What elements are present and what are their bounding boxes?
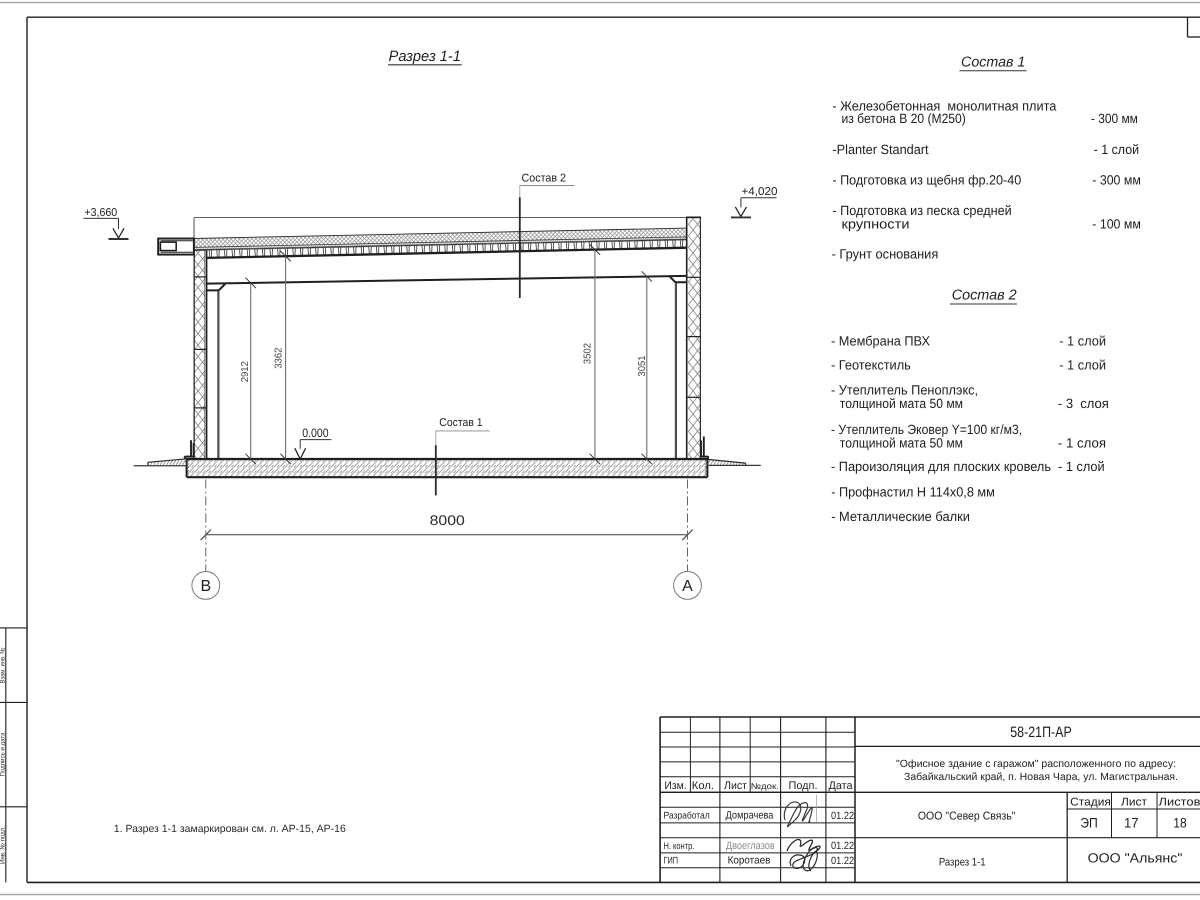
svg-text:3502: 3502	[583, 343, 594, 365]
svg-text:1. Разрез 1-1 замаркирован см.: 1. Разрез 1-1 замаркирован см. л. АР-15,…	[114, 823, 346, 835]
svg-text:Изм.: Изм.	[664, 780, 686, 792]
svg-text:- 300 мм: - 300 мм	[1092, 173, 1141, 188]
svg-text:Листов: Листов	[1159, 796, 1200, 808]
svg-text:18: 18	[1173, 816, 1187, 831]
svg-text:+3,660: +3,660	[84, 207, 117, 219]
svg-text:Подпись и дата: Подпись и дата	[0, 732, 6, 776]
svg-text:- 100 мм: - 100 мм	[1092, 216, 1141, 231]
svg-text:из бетона В 20 (М250): из бетона В 20 (М250)	[842, 111, 966, 126]
svg-text:- Грунт основания: - Грунт основания	[832, 247, 939, 262]
svg-text:Взам. инв. №: Взам. инв. №	[0, 647, 6, 683]
svg-text:- Подготовка из щебня фр.20-40: - Подготовка из щебня фр.20-40	[832, 173, 1021, 188]
svg-text:- 3 слоя: - 3 слоя	[1058, 396, 1109, 411]
svg-text:- Металлические балки: - Металлические балки	[831, 509, 970, 524]
svg-text:Дата: Дата	[829, 780, 854, 792]
svg-text:3362: 3362	[273, 347, 284, 369]
svg-text:Разработал: Разработал	[664, 810, 710, 821]
svg-text:Состав 2: Состав 2	[952, 287, 1017, 303]
svg-text:Лист: Лист	[724, 780, 747, 792]
svg-text:17: 17	[1124, 816, 1139, 831]
svg-text:- Утеплитель Пеноплэкс,: - Утеплитель Пеноплэкс,	[831, 382, 978, 397]
svg-text:Состав 1: Состав 1	[961, 54, 1025, 70]
svg-text:крупности: крупности	[842, 217, 910, 232]
svg-text:толщиной мата 50 мм: толщиной мата 50 мм	[840, 436, 963, 451]
svg-text:- Профнастил Н 114х0,8 мм: - Профнастил Н 114х0,8 мм	[831, 485, 995, 500]
svg-text:- Мембрана ПВХ: - Мембрана ПВХ	[831, 333, 930, 348]
svg-text:ООО "Север Связь": ООО "Север Связь"	[918, 811, 1016, 823]
svg-text:Инв. № подл.: Инв. № подл.	[0, 826, 6, 864]
svg-text:Разрез 1-1: Разрез 1-1	[389, 48, 461, 65]
svg-text:- Пароизоляция для плоских кро: - Пароизоляция для плоских кровель - 1 с…	[831, 459, 1105, 474]
svg-text:8000: 8000	[430, 512, 466, 528]
svg-text:Состав 2: Состав 2	[522, 173, 567, 185]
svg-text:Двоеглазов: Двоеглазов	[726, 840, 775, 852]
svg-text:58-21П-АР: 58-21П-АР	[1010, 724, 1072, 741]
svg-text:ЭП: ЭП	[1080, 816, 1098, 831]
svg-text:Домрачева: Домрачева	[726, 810, 774, 822]
svg-text:-Planter Standart: -Planter Standart	[832, 142, 928, 157]
svg-text:ГИП: ГИП	[664, 856, 679, 867]
svg-text:Состав 1: Состав 1	[439, 417, 482, 429]
svg-text:- 300 мм: - 300 мм	[1091, 111, 1138, 126]
svg-text:Разрез 1-1: Разрез 1-1	[939, 856, 986, 868]
svg-text:- 1 слой: - 1 слой	[1094, 142, 1140, 157]
svg-text:Стадия: Стадия	[1070, 796, 1111, 808]
svg-text:0.000: 0.000	[302, 426, 329, 440]
svg-text:01.22: 01.22	[831, 855, 854, 867]
svg-text:3051: 3051	[637, 355, 648, 377]
svg-text:01.22: 01.22	[831, 810, 854, 822]
svg-text:"Офисное здание с гаражом" рас: "Офисное здание с гаражом" расположенног…	[896, 759, 1176, 770]
svg-text:+4,020: +4,020	[742, 186, 778, 198]
svg-text:Н. контр.: Н. контр.	[664, 841, 695, 852]
svg-text:- Геотекстиль: - Геотекстиль	[831, 357, 911, 372]
svg-text:Кол.: Кол.	[692, 780, 714, 792]
svg-text:ООО "Альянс": ООО "Альянс"	[1088, 851, 1183, 866]
svg-text:Коротаев: Коротаев	[728, 855, 771, 867]
svg-text:01.22: 01.22	[831, 840, 854, 852]
svg-text:Подп.: Подп.	[789, 780, 818, 792]
svg-text:- 1 слоя: - 1 слоя	[1058, 435, 1106, 450]
svg-text:- 1 слой: - 1 слой	[1059, 333, 1106, 348]
svg-text:В: В	[200, 578, 211, 595]
svg-text:толщиной мата 50 мм: толщиной мата 50 мм	[840, 396, 963, 411]
svg-text:А: А	[682, 578, 693, 595]
svg-text:№док.: №док.	[751, 781, 779, 791]
svg-text:- 1 слой: - 1 слой	[1059, 357, 1106, 372]
svg-text:Забайкальский край, п. Новая Ч: Забайкальский край, п. Новая Чара, ул. М…	[904, 772, 1178, 783]
svg-text:2912: 2912	[240, 361, 251, 383]
svg-text:Лист: Лист	[1121, 796, 1147, 808]
